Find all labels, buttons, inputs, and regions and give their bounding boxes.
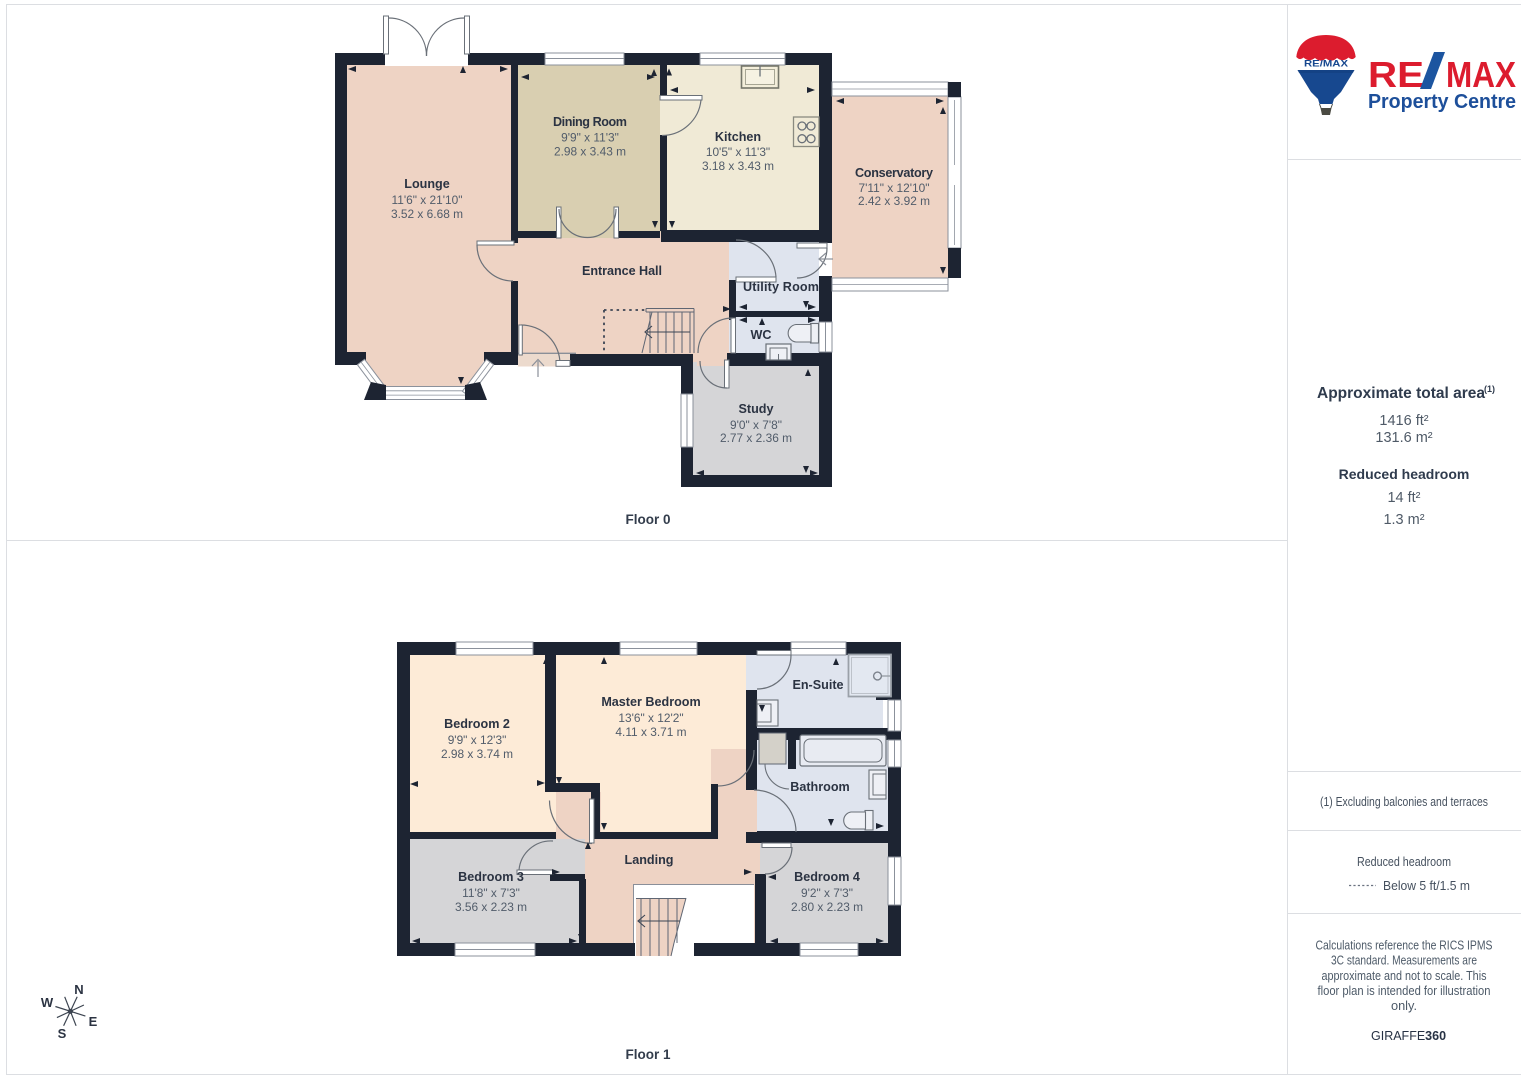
- svg-text:RE/MAX: RE/MAX: [1304, 59, 1349, 70]
- svg-text:Landing: Landing: [625, 853, 674, 867]
- svg-text:9'9" x 11'3": 9'9" x 11'3": [561, 131, 619, 145]
- svg-text:7'11" x 12'10": 7'11" x 12'10": [859, 181, 930, 195]
- svg-text:approximate and not to scale.: approximate and not to scale. This: [1322, 968, 1487, 983]
- svg-text:1.3 m²: 1.3 m²: [1383, 512, 1424, 528]
- svg-text:Dining Room: Dining Room: [553, 115, 627, 129]
- svg-text:RE: RE: [1368, 54, 1424, 95]
- svg-text:9'9" x 12'3": 9'9" x 12'3": [448, 733, 507, 747]
- svg-text:Master Bedroom: Master Bedroom: [601, 695, 700, 709]
- svg-text:13'6" x 12'2": 13'6" x 12'2": [618, 711, 683, 725]
- svg-text:3.52 x 6.68 m: 3.52 x 6.68 m: [391, 207, 463, 221]
- svg-text:(1) Excluding balconies and te: (1) Excluding balconies and terraces: [1320, 794, 1488, 809]
- svg-text:Below 5 ft/1.5 m: Below 5 ft/1.5 m: [1383, 878, 1470, 893]
- svg-text:Reduced headroom: Reduced headroom: [1339, 466, 1470, 482]
- svg-text:10'5" x 11'3": 10'5" x 11'3": [706, 145, 770, 159]
- svg-text:3.56 x 2.23 m: 3.56 x 2.23 m: [455, 900, 527, 914]
- svg-text:Reduced headroom: Reduced headroom: [1357, 854, 1451, 869]
- svg-text:9'2" x 7'3": 9'2" x 7'3": [801, 886, 853, 900]
- svg-text:(1): (1): [1484, 384, 1495, 394]
- svg-text:Utility Room: Utility Room: [743, 280, 819, 294]
- svg-text:2.77 x 2.36 m: 2.77 x 2.36 m: [720, 431, 792, 445]
- svg-text:Study: Study: [739, 402, 774, 416]
- svg-text:S: S: [58, 1026, 67, 1041]
- svg-text:2.98 x 3.74 m: 2.98 x 3.74 m: [441, 747, 513, 761]
- svg-text:E: E: [89, 1014, 98, 1029]
- svg-text:4.11 x 3.71 m: 4.11 x 3.71 m: [615, 725, 686, 739]
- svg-text:MAX: MAX: [1446, 54, 1516, 95]
- svg-text:Bedroom 2: Bedroom 2: [444, 717, 510, 731]
- svg-text:2.42 x 3.92 m: 2.42 x 3.92 m: [858, 194, 930, 208]
- svg-text:only.: only.: [1391, 998, 1417, 1013]
- svg-text:Calculations reference the RIC: Calculations reference the RICS IPMS: [1316, 938, 1493, 953]
- svg-text:Bedroom 3: Bedroom 3: [458, 870, 524, 884]
- svg-text:Lounge: Lounge: [404, 177, 449, 191]
- svg-text:N: N: [74, 982, 83, 997]
- svg-text:14 ft²: 14 ft²: [1387, 490, 1420, 506]
- svg-text:11'6" x 21'10": 11'6" x 21'10": [392, 193, 463, 207]
- svg-text:WC: WC: [751, 328, 772, 342]
- svg-text:Bedroom 4: Bedroom 4: [794, 870, 860, 884]
- svg-text:Entrance Hall: Entrance Hall: [582, 264, 662, 278]
- svg-text:9'0" x 7'8": 9'0" x 7'8": [730, 418, 782, 432]
- svg-text:Approximate total area: Approximate total area: [1317, 385, 1485, 402]
- svg-text:Floor 1: Floor 1: [625, 1047, 670, 1062]
- svg-text:floor plan is intended for ill: floor plan is intended for illustration: [1318, 983, 1491, 998]
- svg-text:11'8" x 7'3": 11'8" x 7'3": [462, 886, 520, 900]
- svg-text:Conservatory: Conservatory: [855, 166, 933, 180]
- svg-text:Floor 0: Floor 0: [625, 512, 670, 527]
- svg-text:1416 ft²: 1416 ft²: [1379, 413, 1428, 429]
- svg-text:Bathroom: Bathroom: [790, 780, 849, 794]
- svg-text:2.98 x 3.43 m: 2.98 x 3.43 m: [554, 145, 626, 159]
- svg-text:GIRAFFE360: GIRAFFE360: [1371, 1029, 1446, 1043]
- svg-text:En-Suite: En-Suite: [792, 678, 843, 692]
- svg-text:131.6 m²: 131.6 m²: [1375, 430, 1432, 446]
- svg-text:3C standard. Measurements are: 3C standard. Measurements are: [1331, 953, 1477, 968]
- svg-text:Kitchen: Kitchen: [715, 130, 761, 144]
- svg-text:Property Centre: Property Centre: [1368, 91, 1516, 113]
- svg-text:2.80 x 2.23 m: 2.80 x 2.23 m: [791, 900, 863, 914]
- svg-text:3.18 x 3.43 m: 3.18 x 3.43 m: [702, 159, 774, 173]
- svg-text:W: W: [41, 995, 54, 1010]
